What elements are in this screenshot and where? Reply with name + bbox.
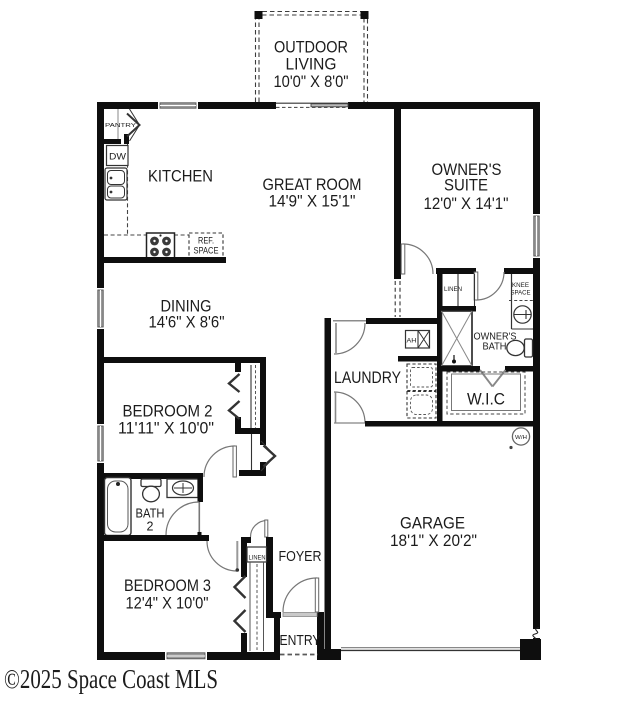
svg-text:AH: AH xyxy=(407,338,417,345)
svg-text:DW: DW xyxy=(109,152,126,163)
svg-text:W/H: W/H xyxy=(515,435,527,441)
svg-text:PANTRY: PANTRY xyxy=(105,123,136,129)
svg-text:12'4" X 10'0": 12'4" X 10'0" xyxy=(126,595,209,613)
svg-text:OUTDOOR: OUTDOOR xyxy=(274,39,348,57)
svg-text:2: 2 xyxy=(147,520,154,534)
svg-text:11'11" X 10'0": 11'11" X 10'0" xyxy=(118,420,214,438)
svg-text:14'9" X 15'1": 14'9" X 15'1" xyxy=(269,193,356,211)
svg-text:18'1" X 20'2": 18'1" X 20'2" xyxy=(390,532,477,550)
svg-text:BEDROOM 2: BEDROOM 2 xyxy=(123,403,213,421)
svg-text:W.I.C: W.I.C xyxy=(467,391,505,409)
svg-text:SUITE: SUITE xyxy=(444,177,488,195)
svg-text:BATH: BATH xyxy=(483,341,507,353)
svg-text:14'6" X 8'6": 14'6" X 8'6" xyxy=(149,314,225,332)
svg-text:BEDROOM 3: BEDROOM 3 xyxy=(124,577,211,595)
svg-text:FOYER: FOYER xyxy=(279,549,322,565)
svg-text:KNEE: KNEE xyxy=(512,282,529,289)
svg-text:GARAGE: GARAGE xyxy=(400,515,465,533)
svg-text:BATH: BATH xyxy=(136,507,165,521)
svg-text:KITCHEN: KITCHEN xyxy=(148,168,213,186)
svg-text:LINEN: LINEN xyxy=(249,555,266,562)
svg-text:SPACE: SPACE xyxy=(511,290,531,297)
svg-text:REF.: REF. xyxy=(198,236,214,246)
svg-text:LINEN: LINEN xyxy=(444,286,462,293)
svg-text:10'0" X 8'0": 10'0" X 8'0" xyxy=(274,73,349,91)
svg-text:GREAT ROOM: GREAT ROOM xyxy=(263,176,362,194)
svg-text:12'0" X 14'1": 12'0" X 14'1" xyxy=(424,195,509,213)
svg-text:ENTRY: ENTRY xyxy=(280,633,321,649)
svg-text:SPACE: SPACE xyxy=(194,246,219,256)
svg-text:LAUNDRY: LAUNDRY xyxy=(334,369,401,387)
svg-text:LIVING: LIVING xyxy=(286,56,337,74)
svg-text:©2025 Space Coast MLS: ©2025 Space Coast MLS xyxy=(4,664,218,694)
